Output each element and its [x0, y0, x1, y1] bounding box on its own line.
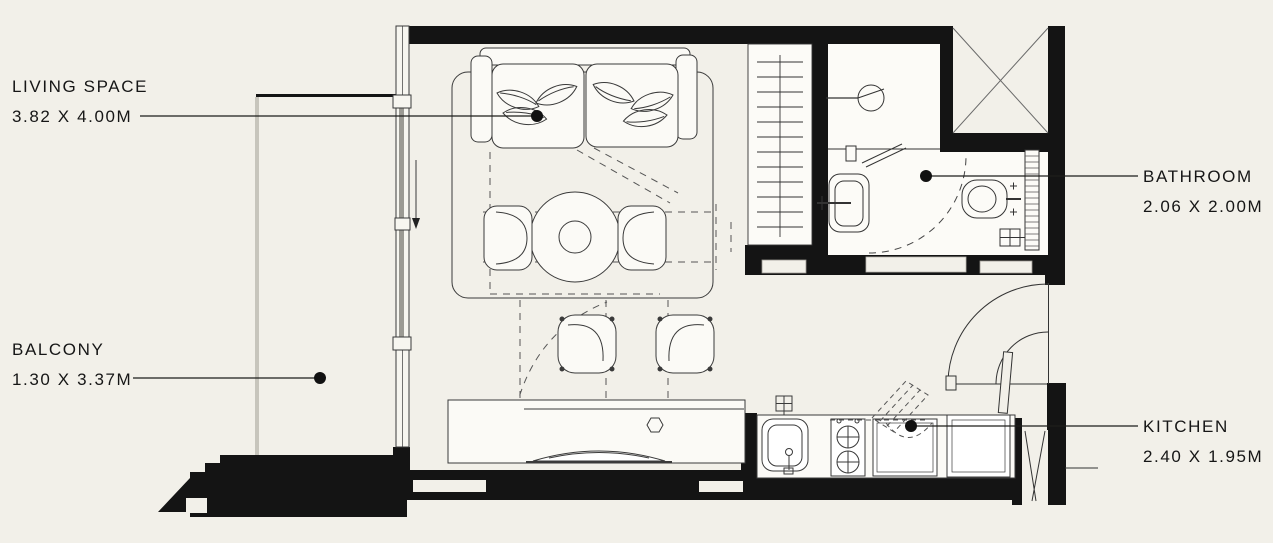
kitchen-name: KITCHEN	[1143, 418, 1263, 435]
dining-chair-left	[484, 206, 532, 270]
fridge	[947, 415, 1010, 477]
water-point	[776, 396, 792, 415]
bathroom-name: BATHROOM	[1143, 168, 1263, 185]
towel-rail	[1025, 150, 1039, 250]
kitchen-dimensions: 2.40 X 1.95M	[1143, 448, 1263, 465]
bathroom-dimensions: 2.06 X 2.00M	[1143, 198, 1263, 215]
floor-plan: LIVING SPACE 3.82 X 4.00M BALCONY 1.30 X…	[0, 0, 1273, 543]
dining-table	[530, 192, 620, 282]
balcony-dimensions: 1.30 X 3.37M	[12, 371, 132, 388]
living-space-name: LIVING SPACE	[12, 78, 148, 95]
service-shaft	[953, 28, 1048, 133]
label-bathroom: BATHROOM 2.06 X 2.00M	[1143, 168, 1263, 215]
wardrobe	[748, 44, 812, 245]
leader-dot	[531, 110, 543, 122]
label-kitchen: KITCHEN 2.40 X 1.95M	[1143, 418, 1263, 465]
balcony-name: BALCONY	[12, 341, 132, 358]
kitchen-sink	[762, 419, 808, 474]
duct	[1025, 431, 1045, 501]
leader-dot	[905, 420, 917, 432]
sliding-door	[393, 26, 420, 447]
label-living-space: LIVING SPACE 3.82 X 4.00M	[12, 78, 148, 125]
label-balcony: BALCONY 1.30 X 3.37M	[12, 341, 132, 388]
living-space-dimensions: 3.82 X 4.00M	[12, 108, 148, 125]
balcony-railing	[255, 97, 259, 455]
stool-right	[656, 315, 714, 373]
stool-left	[558, 315, 616, 373]
leader-dot	[314, 372, 326, 384]
console-table	[448, 400, 745, 463]
leader-balcony	[133, 372, 326, 384]
leader-dot	[920, 170, 932, 182]
floor-plan-drawing	[0, 0, 1273, 543]
dining-chair-right	[618, 206, 666, 270]
toilet	[962, 180, 1021, 218]
stove	[831, 419, 865, 476]
